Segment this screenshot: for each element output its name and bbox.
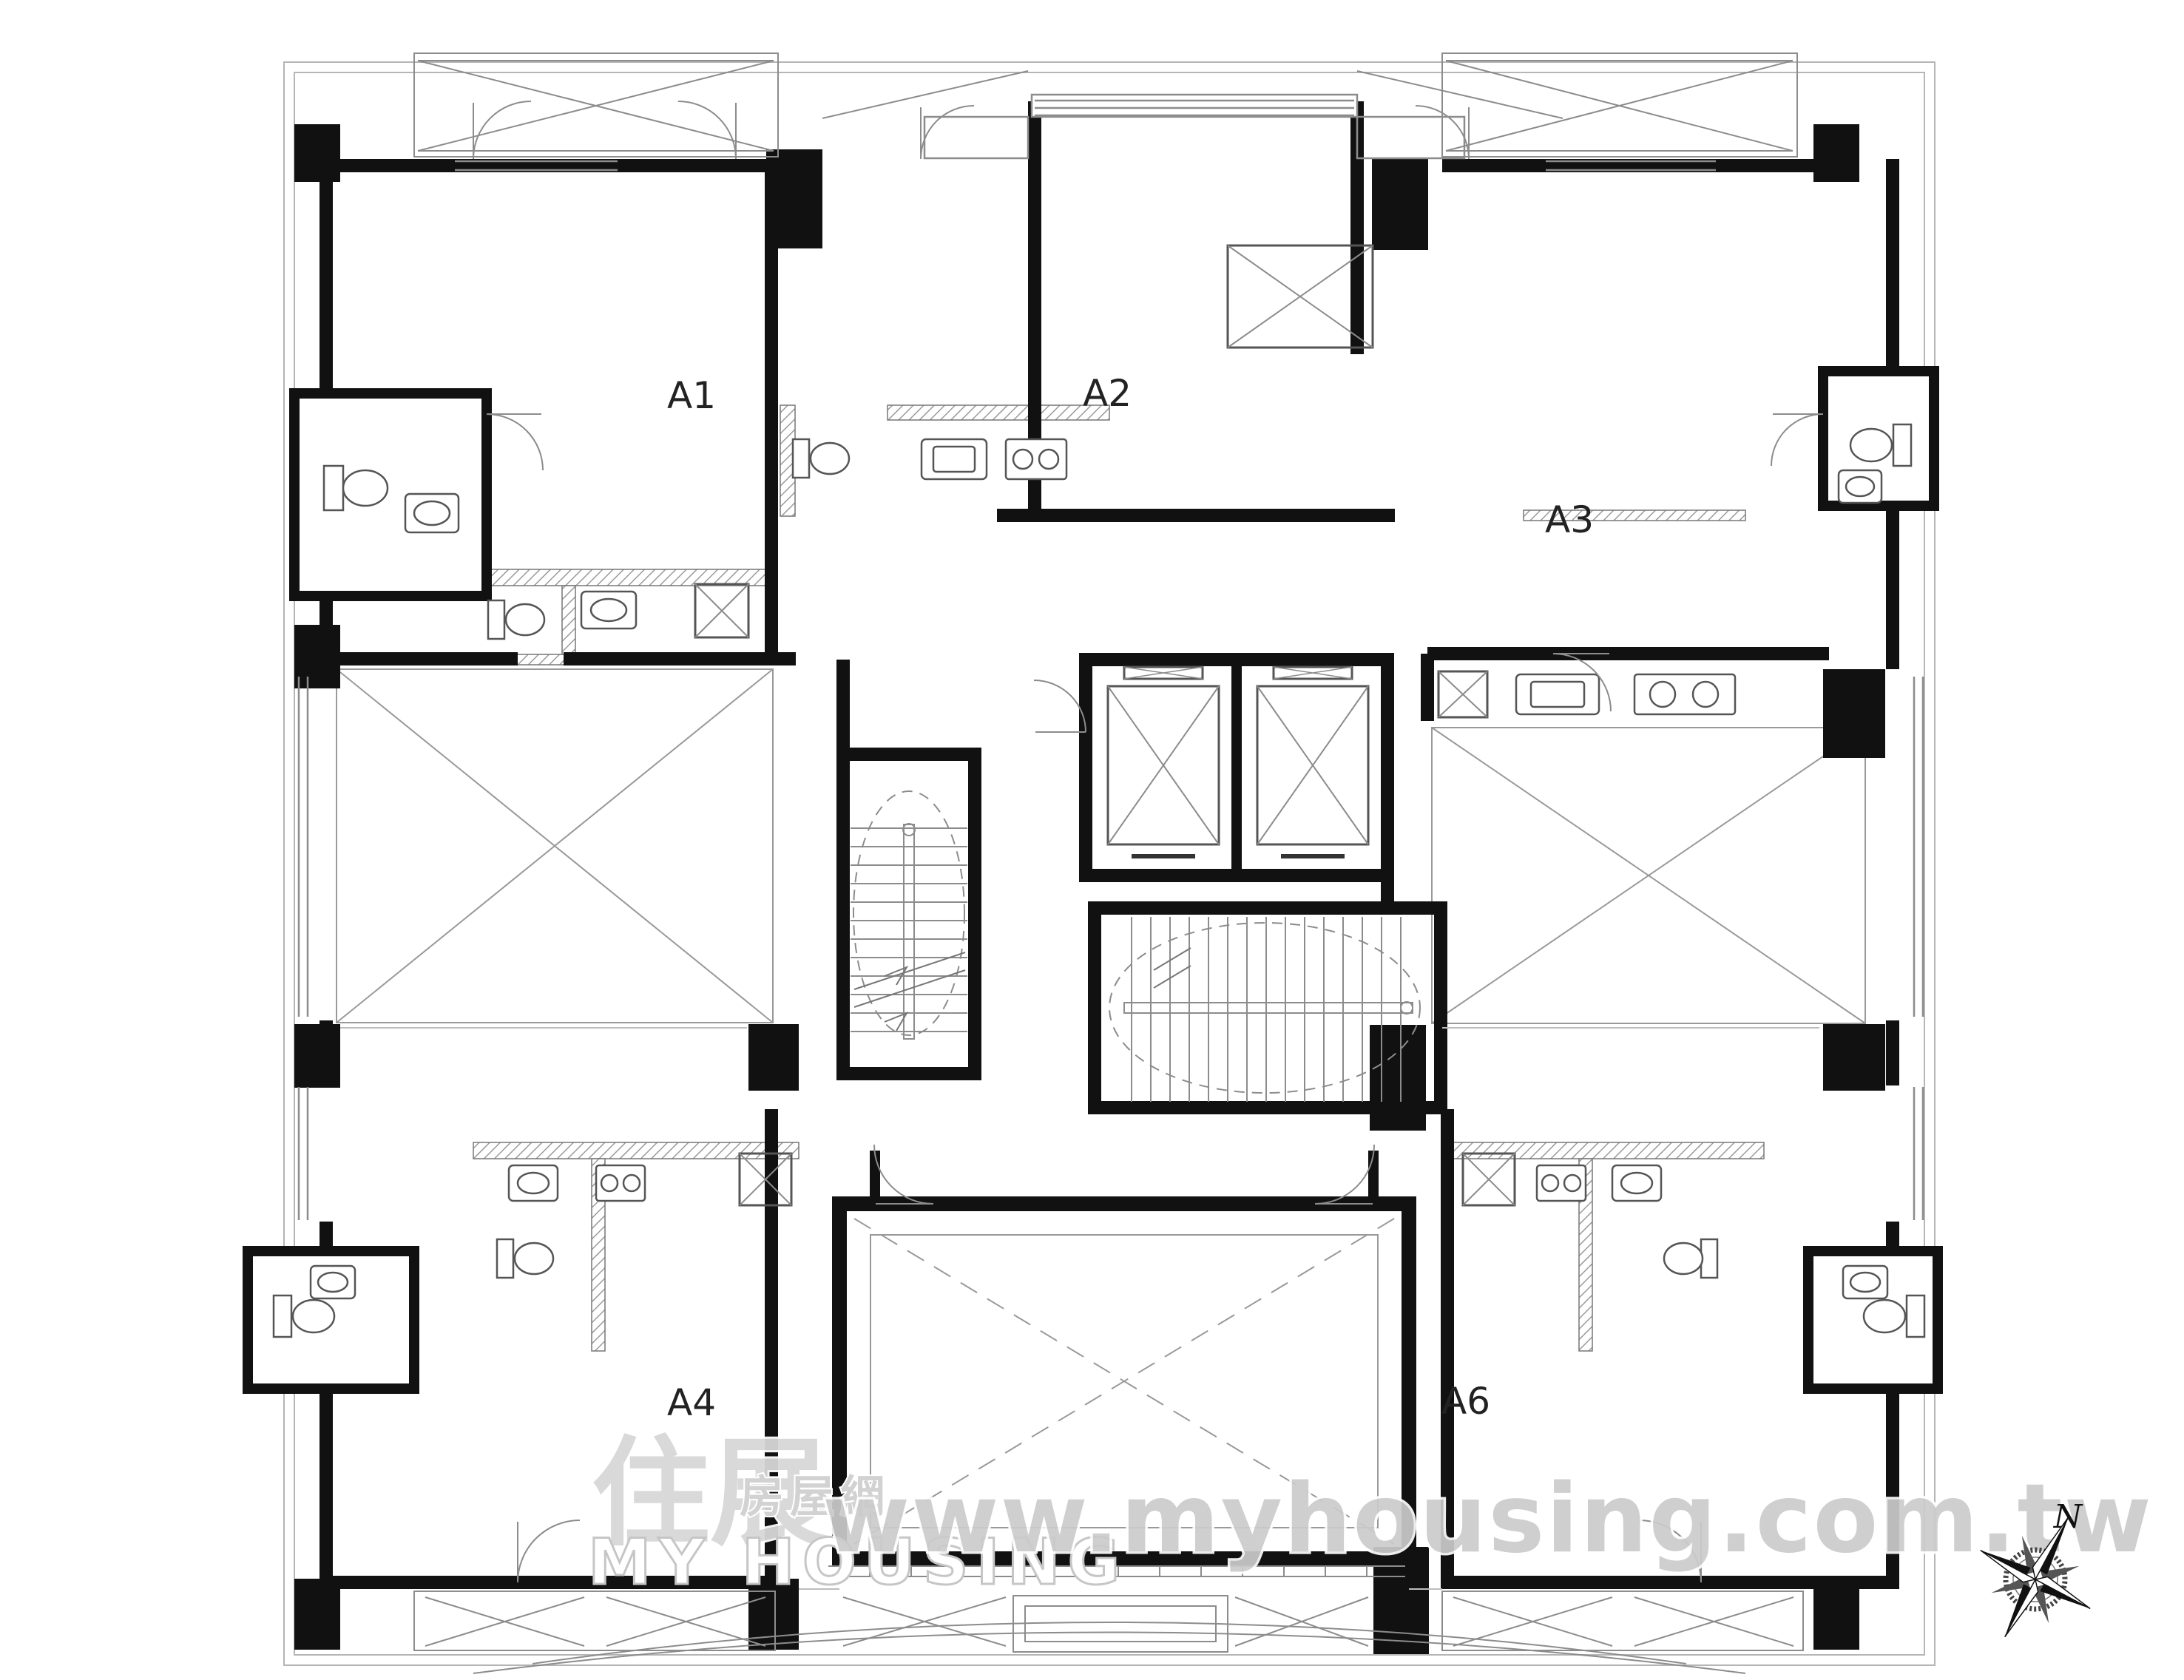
- door-arcs: [473, 101, 1823, 1582]
- sink-icon: [1843, 1266, 1887, 1298]
- unit-label-a1: A1: [667, 374, 716, 417]
- unit-label-a2: A2: [1083, 372, 1132, 415]
- toilet-icon: [1664, 1239, 1717, 1278]
- toilet-icon: [497, 1239, 553, 1278]
- toilet-icon: [324, 466, 388, 510]
- unit-labels: A1 A2 A3 A4 A6: [667, 372, 1594, 1424]
- left-void-x: [337, 669, 773, 1023]
- watermark-url-text: www.myhousing.com.tw: [822, 1464, 2153, 1574]
- floorplan-canvas: A1 A2 A3 A4 A6 住展 房屋網 MY HOUSING www.myh…: [0, 0, 2184, 1680]
- toilet-icon: [1864, 1295, 1924, 1337]
- unit-label-a3: A3: [1545, 498, 1594, 541]
- sink-icon: [405, 494, 459, 532]
- unit-label-a6: A6: [1441, 1380, 1490, 1423]
- staircase-left: [851, 791, 967, 1039]
- toilet-icon: [793, 439, 849, 478]
- sink-icon: [1612, 1165, 1661, 1201]
- stove-icon: [1634, 674, 1735, 714]
- sink-icon: [311, 1266, 355, 1298]
- stove-icon: [1537, 1165, 1586, 1201]
- toilet-icon: [488, 600, 544, 639]
- toilet-icon: [274, 1295, 334, 1337]
- stove-icon: [1006, 439, 1066, 479]
- floorplan-drawing: A1 A2 A3 A4 A6 住展 房屋網 MY HOUSING www.myh…: [0, 0, 2184, 1680]
- sink-icon: [922, 439, 987, 479]
- structural-columns: [294, 124, 1885, 1654]
- toilet-icon: [1850, 424, 1911, 466]
- sink-icon: [1839, 470, 1882, 503]
- sink-icon: [581, 592, 636, 629]
- unit-label-a4: A4: [667, 1381, 716, 1424]
- stove-icon: [596, 1165, 645, 1201]
- compass-north-label: N: [2053, 1498, 2083, 1536]
- right-void-x: [1432, 728, 1865, 1023]
- sink-icon: [1516, 674, 1599, 714]
- sink-icon: [509, 1165, 558, 1201]
- watermark: 住展 房屋網 MY HOUSING www.myhousing.com.tw: [588, 1424, 2153, 1599]
